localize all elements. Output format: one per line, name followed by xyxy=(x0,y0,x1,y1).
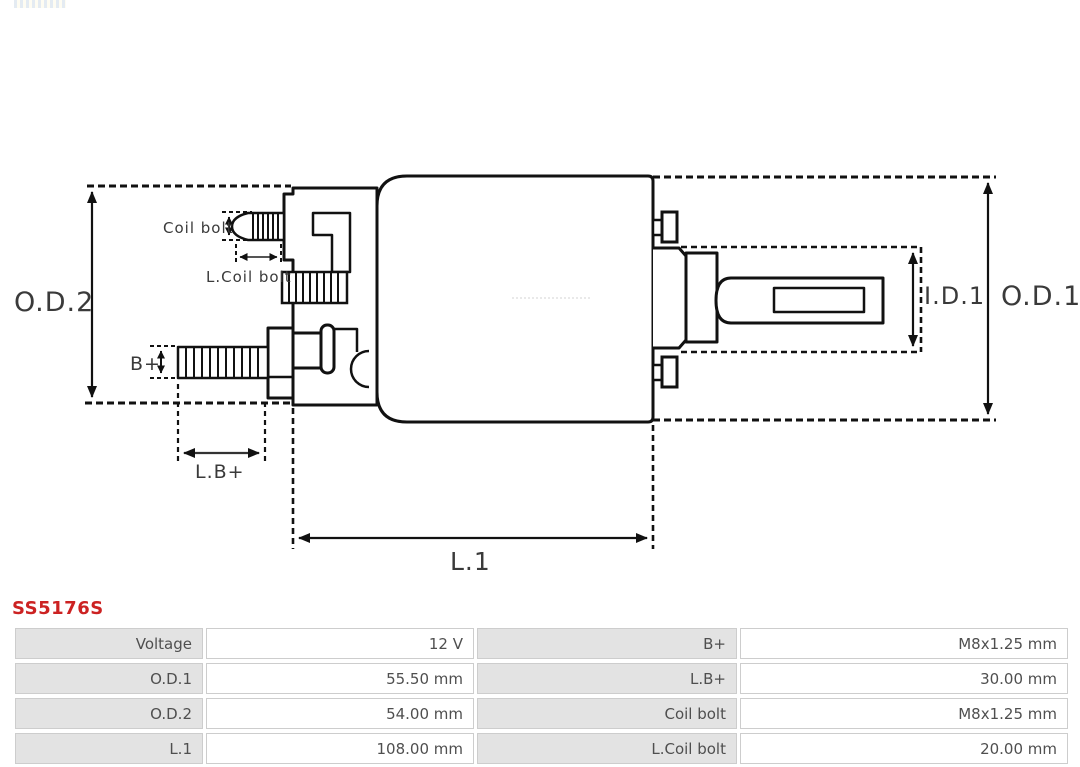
plunger-assembly xyxy=(653,248,883,348)
spec-value: 20.00 mm xyxy=(740,733,1068,764)
spec-value: M8x1.25 mm xyxy=(740,628,1068,659)
od2-label: O.D.2 xyxy=(14,287,94,318)
spec-table: Voltage 12 V B+ M8x1.25 mm O.D.1 55.50 m… xyxy=(12,624,1071,767)
b-plus-label: B+ xyxy=(130,353,161,375)
table-row: L.1 108.00 mm L.Coil bolt 20.00 mm xyxy=(15,733,1068,764)
l1-label: L.1 xyxy=(450,547,491,576)
spec-label: O.D.1 xyxy=(15,663,203,694)
coil-bolt-label: Coil bolt xyxy=(163,219,234,237)
spec-value: 108.00 mm xyxy=(206,733,474,764)
spec-label: L.Coil bolt xyxy=(477,733,737,764)
l-coil-bolt-dimension: L.Coil bolt xyxy=(206,244,292,286)
coil-bolt-terminal xyxy=(232,213,284,240)
od1-label: O.D.1 xyxy=(1001,281,1080,312)
spec-label: B+ xyxy=(477,628,737,659)
id1-label: I.D.1 xyxy=(924,282,985,310)
lb-plus-dimension: L.B+ xyxy=(178,384,265,483)
spec-label: L.1 xyxy=(15,733,203,764)
spec-value: 54.00 mm xyxy=(206,698,474,729)
table-row: O.D.1 55.50 mm L.B+ 30.00 mm xyxy=(15,663,1068,694)
solenoid-diagram: O.D.2 O.D.1 I.D.1 Coil bolt xyxy=(0,0,1080,600)
table-row: Voltage 12 V B+ M8x1.25 mm xyxy=(15,628,1068,659)
datasheet-page: O.D.2 O.D.1 I.D.1 Coil bolt xyxy=(0,0,1080,767)
spec-label: Coil bolt xyxy=(477,698,737,729)
od2-dimension: O.D.2 xyxy=(14,192,94,397)
spec-label: L.B+ xyxy=(477,663,737,694)
spec-value: M8x1.25 mm xyxy=(740,698,1068,729)
od1-dimension: O.D.1 xyxy=(988,183,1080,414)
b-plus-dimension: B+ xyxy=(130,346,178,378)
solenoid-body xyxy=(377,176,653,422)
spec-value: 12 V xyxy=(206,628,474,659)
spec-label: Voltage xyxy=(15,628,203,659)
spec-value: 30.00 mm xyxy=(740,663,1068,694)
l1-dimension: L.1 xyxy=(293,408,653,576)
part-number: SS5176S xyxy=(12,598,104,619)
lb-plus-label: L.B+ xyxy=(195,461,245,483)
l-coil-bolt-label: L.Coil bolt xyxy=(206,268,292,286)
table-row: O.D.2 54.00 mm Coil bolt M8x1.25 mm xyxy=(15,698,1068,729)
spec-label: O.D.2 xyxy=(15,698,203,729)
coil-thread-bushing xyxy=(282,272,347,303)
spec-value: 55.50 mm xyxy=(206,663,474,694)
